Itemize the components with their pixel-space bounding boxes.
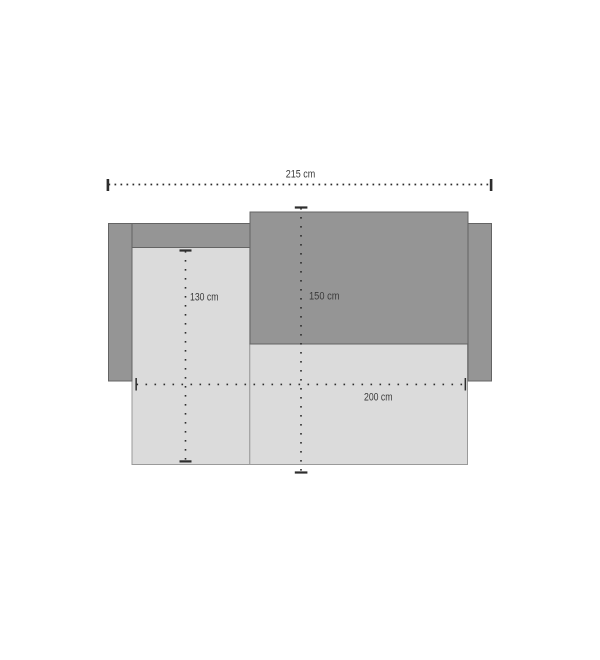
svg-text:150 cm: 150 cm	[309, 291, 340, 303]
svg-text:215 cm: 215 cm	[286, 169, 316, 181]
svg-text:200 cm: 200 cm	[364, 392, 393, 404]
svg-text:130 cm: 130 cm	[190, 292, 219, 304]
